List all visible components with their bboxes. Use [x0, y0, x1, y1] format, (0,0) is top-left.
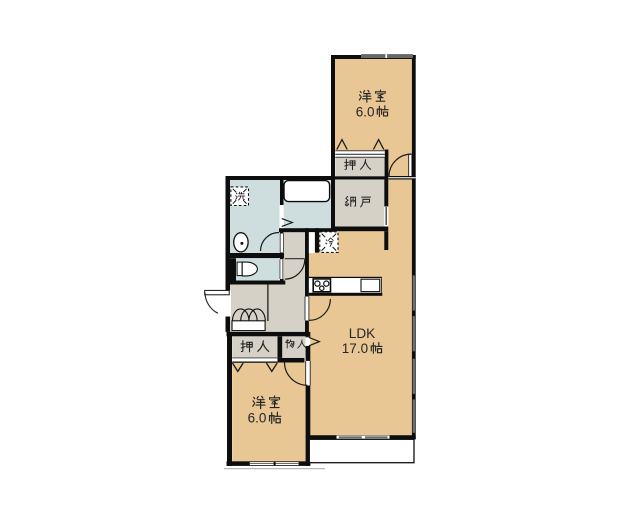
- svg-text:6.0: 6.0: [248, 411, 267, 426]
- svg-text:17.0: 17.0: [342, 341, 368, 356]
- svg-text:LDK: LDK: [349, 326, 375, 341]
- svg-text:6.0: 6.0: [356, 104, 375, 119]
